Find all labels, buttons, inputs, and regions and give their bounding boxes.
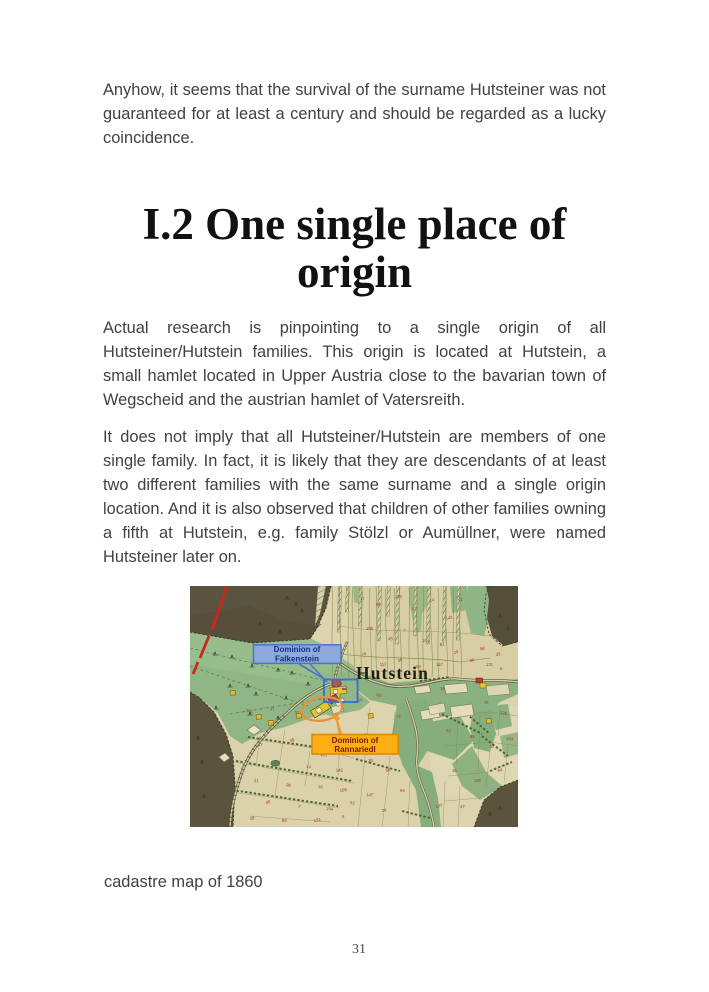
- svg-text:154: 154: [326, 806, 334, 812]
- svg-text:Hutstein: Hutstein: [356, 663, 429, 683]
- svg-text:142: 142: [336, 767, 344, 773]
- svg-text:Dominion of: Dominion of: [274, 645, 321, 654]
- svg-text:17: 17: [258, 742, 263, 747]
- svg-text:126: 126: [500, 710, 508, 716]
- svg-text:154: 154: [422, 638, 430, 643]
- svg-text:147: 147: [366, 792, 374, 798]
- svg-text:108: 108: [366, 626, 374, 631]
- svg-text:123: 123: [395, 594, 403, 599]
- svg-text:Falkenstein: Falkenstein: [275, 654, 319, 663]
- svg-text:118: 118: [474, 778, 482, 783]
- svg-text:161: 161: [246, 708, 254, 714]
- svg-text:147: 147: [436, 662, 444, 667]
- svg-text:Rannariedl: Rannariedl: [334, 745, 375, 754]
- svg-text:104: 104: [506, 736, 514, 742]
- svg-text:93: 93: [400, 788, 405, 793]
- svg-text:131: 131: [486, 662, 494, 667]
- svg-text:Dominion of: Dominion of: [332, 736, 379, 745]
